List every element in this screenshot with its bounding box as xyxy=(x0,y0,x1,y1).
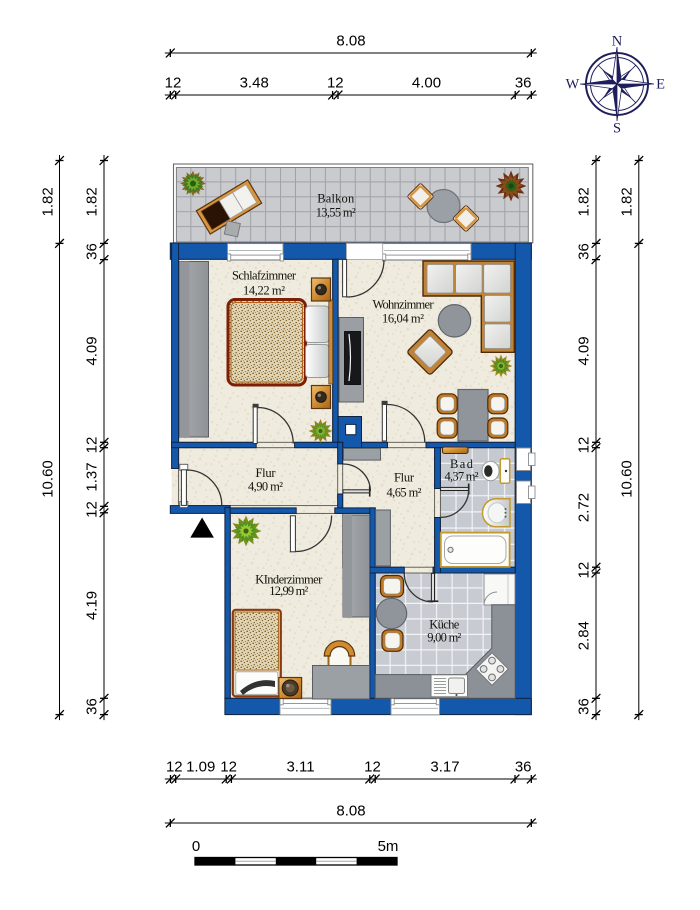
svg-text:12: 12 xyxy=(576,437,593,454)
svg-text:3.11: 3.11 xyxy=(286,759,314,776)
svg-text:W: W xyxy=(566,77,580,93)
svg-text:14,22 m²: 14,22 m² xyxy=(243,284,285,298)
svg-text:12: 12 xyxy=(364,759,381,776)
svg-text:1.82: 1.82 xyxy=(618,187,635,216)
svg-text:12: 12 xyxy=(327,75,344,92)
svg-text:1.82: 1.82 xyxy=(40,187,57,216)
svg-text:4.09: 4.09 xyxy=(84,336,101,365)
svg-text:9,00 m²: 9,00 m² xyxy=(427,631,461,645)
svg-text:Flur: Flur xyxy=(256,466,277,480)
svg-text:12: 12 xyxy=(165,75,182,92)
svg-text:36: 36 xyxy=(84,698,101,715)
svg-text:1.82: 1.82 xyxy=(576,187,593,216)
svg-text:4.19: 4.19 xyxy=(84,591,101,620)
svg-text:16,04 m²: 16,04 m² xyxy=(382,312,424,326)
svg-text:12,99 m²: 12,99 m² xyxy=(269,584,308,598)
svg-text:S: S xyxy=(613,121,621,137)
svg-text:13,55 m²: 13,55 m² xyxy=(316,206,356,220)
svg-text:Flur: Flur xyxy=(394,471,415,485)
svg-text:36: 36 xyxy=(576,698,593,715)
svg-text:12: 12 xyxy=(84,501,101,518)
svg-text:1.09: 1.09 xyxy=(186,759,215,776)
svg-text:8.08: 8.08 xyxy=(336,33,365,50)
svg-text:4.00: 4.00 xyxy=(412,75,441,92)
svg-text:12: 12 xyxy=(84,437,101,454)
svg-text:0: 0 xyxy=(192,838,200,855)
svg-text:1.37: 1.37 xyxy=(84,462,101,491)
svg-text:12: 12 xyxy=(576,562,593,579)
svg-text:2.72: 2.72 xyxy=(576,493,593,522)
svg-text:Balkon: Balkon xyxy=(317,192,355,206)
svg-text:10.60: 10.60 xyxy=(618,460,635,498)
svg-text:8.08: 8.08 xyxy=(336,803,365,820)
svg-text:36: 36 xyxy=(84,243,101,260)
svg-text:10.60: 10.60 xyxy=(40,460,57,498)
svg-text:36: 36 xyxy=(576,243,593,260)
svg-text:4,37 m²: 4,37 m² xyxy=(445,470,479,484)
svg-text:E: E xyxy=(656,77,665,93)
svg-text:5m: 5m xyxy=(378,838,399,855)
svg-text:Wohnzimmer: Wohnzimmer xyxy=(373,298,435,312)
svg-text:36: 36 xyxy=(515,759,532,776)
svg-text:3.48: 3.48 xyxy=(240,75,269,92)
svg-text:Schlafzimmer: Schlafzimmer xyxy=(232,269,297,283)
svg-text:N: N xyxy=(612,34,623,50)
svg-text:2.84: 2.84 xyxy=(576,621,593,650)
svg-text:4,90 m²: 4,90 m² xyxy=(248,480,283,494)
svg-text:1.82: 1.82 xyxy=(84,187,101,216)
svg-text:3.17: 3.17 xyxy=(430,759,459,776)
svg-text:12: 12 xyxy=(220,759,237,776)
svg-text:4,65 m²: 4,65 m² xyxy=(387,486,422,500)
svg-text:4.09: 4.09 xyxy=(576,336,593,365)
svg-text:36: 36 xyxy=(515,75,532,92)
svg-text:12: 12 xyxy=(166,759,183,776)
svg-text:Küche: Küche xyxy=(429,618,459,632)
